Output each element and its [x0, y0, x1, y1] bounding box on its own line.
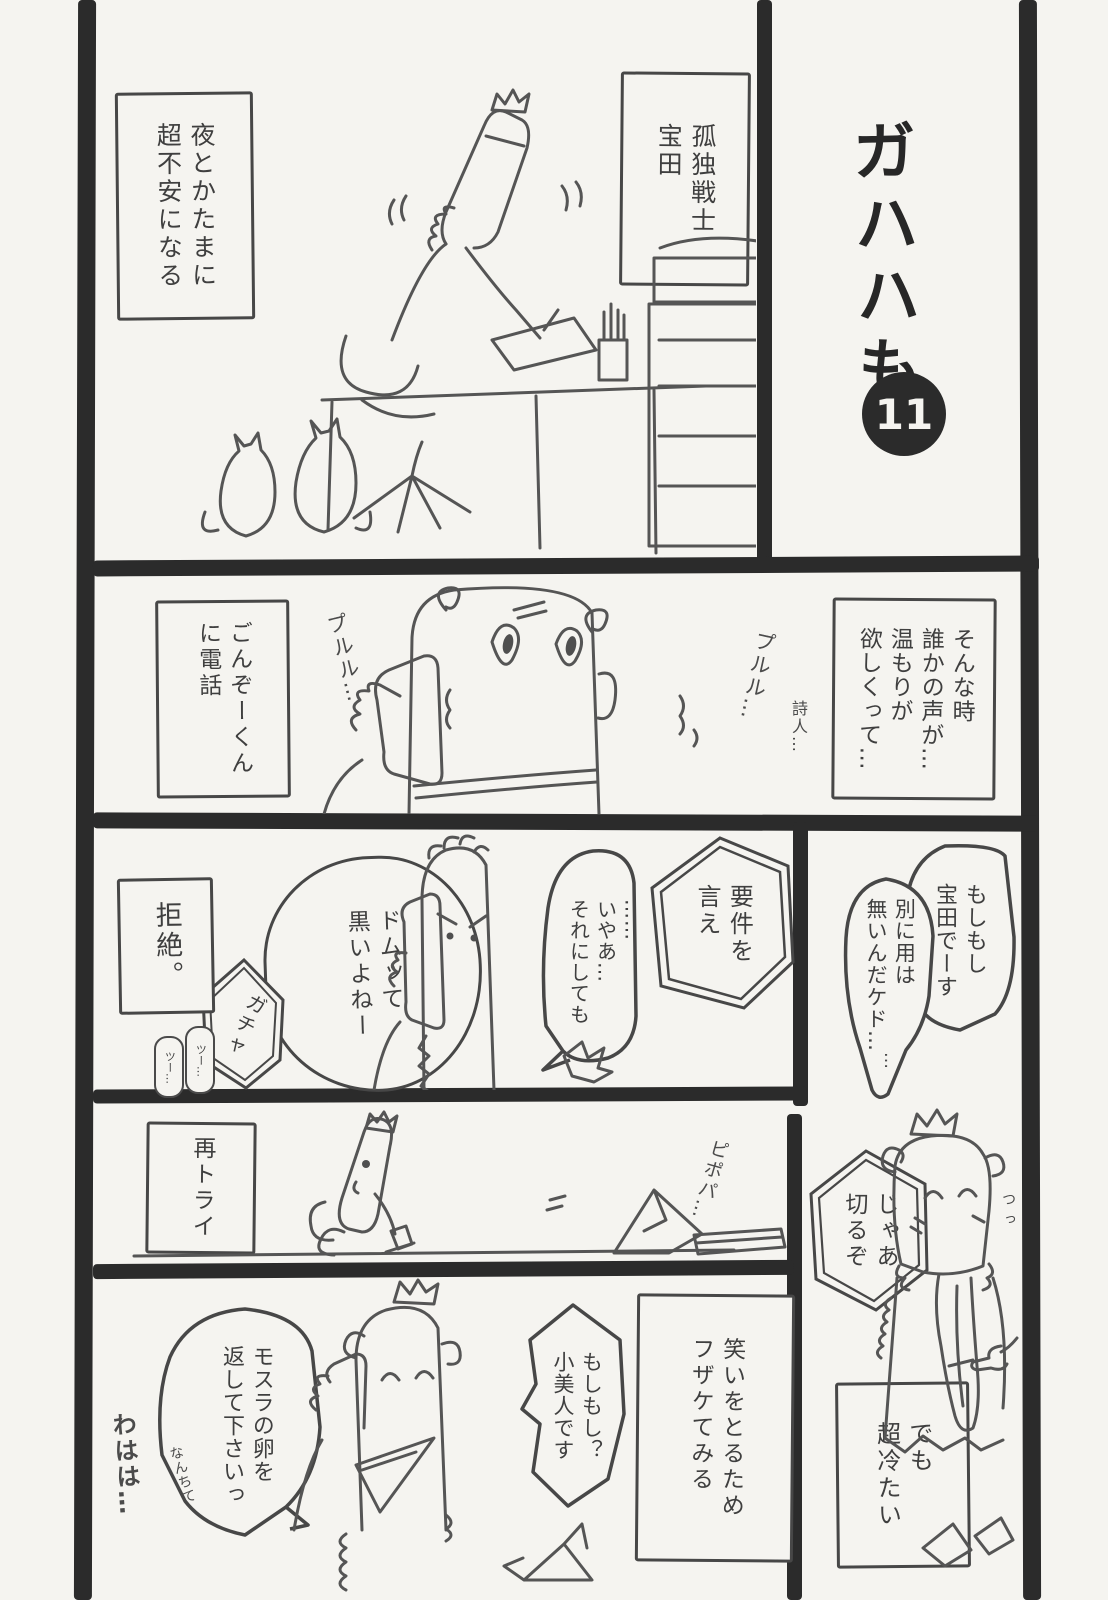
- divider-row4-row5: [93, 1260, 794, 1279]
- desk-scene-drawing: [94, 8, 756, 560]
- manga-page: ガハハも 11 夜とかたまに 超不安になる 孤独戦士 宝田: [0, 0, 1108, 1600]
- silence-dots-text: …: [880, 1052, 900, 1071]
- page-right-border: [1019, 0, 1041, 1600]
- divider-row2-row3: [93, 812, 1039, 831]
- joking-character-drawing: [94, 1278, 794, 1600]
- series-title: ガハハも: [844, 117, 917, 407]
- tongue-character-drawing: [803, 1106, 1021, 1600]
- page-left-border: [74, 0, 96, 1600]
- episode-number-badge: 11: [862, 372, 946, 456]
- no-business-bubble-text: 別に用は 無いんだケド…: [862, 898, 919, 1052]
- retry-scene-drawing: [94, 1102, 794, 1262]
- divider-panel1-title: [757, 0, 772, 572]
- rejected-face-drawing: [94, 830, 794, 1090]
- ringing-face-drawing: [94, 578, 1021, 814]
- no-business-bubble: 別に用は 無いんだケド… …: [838, 876, 942, 1108]
- episode-number: 11: [875, 390, 933, 439]
